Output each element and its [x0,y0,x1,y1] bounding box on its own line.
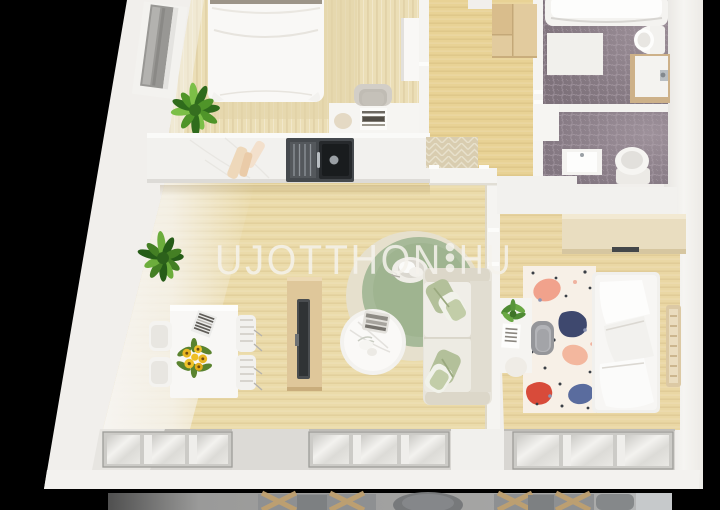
svg-text:HU: HU [459,236,513,283]
svg-text:UJOTTHON: UJOTTHON [215,236,443,283]
